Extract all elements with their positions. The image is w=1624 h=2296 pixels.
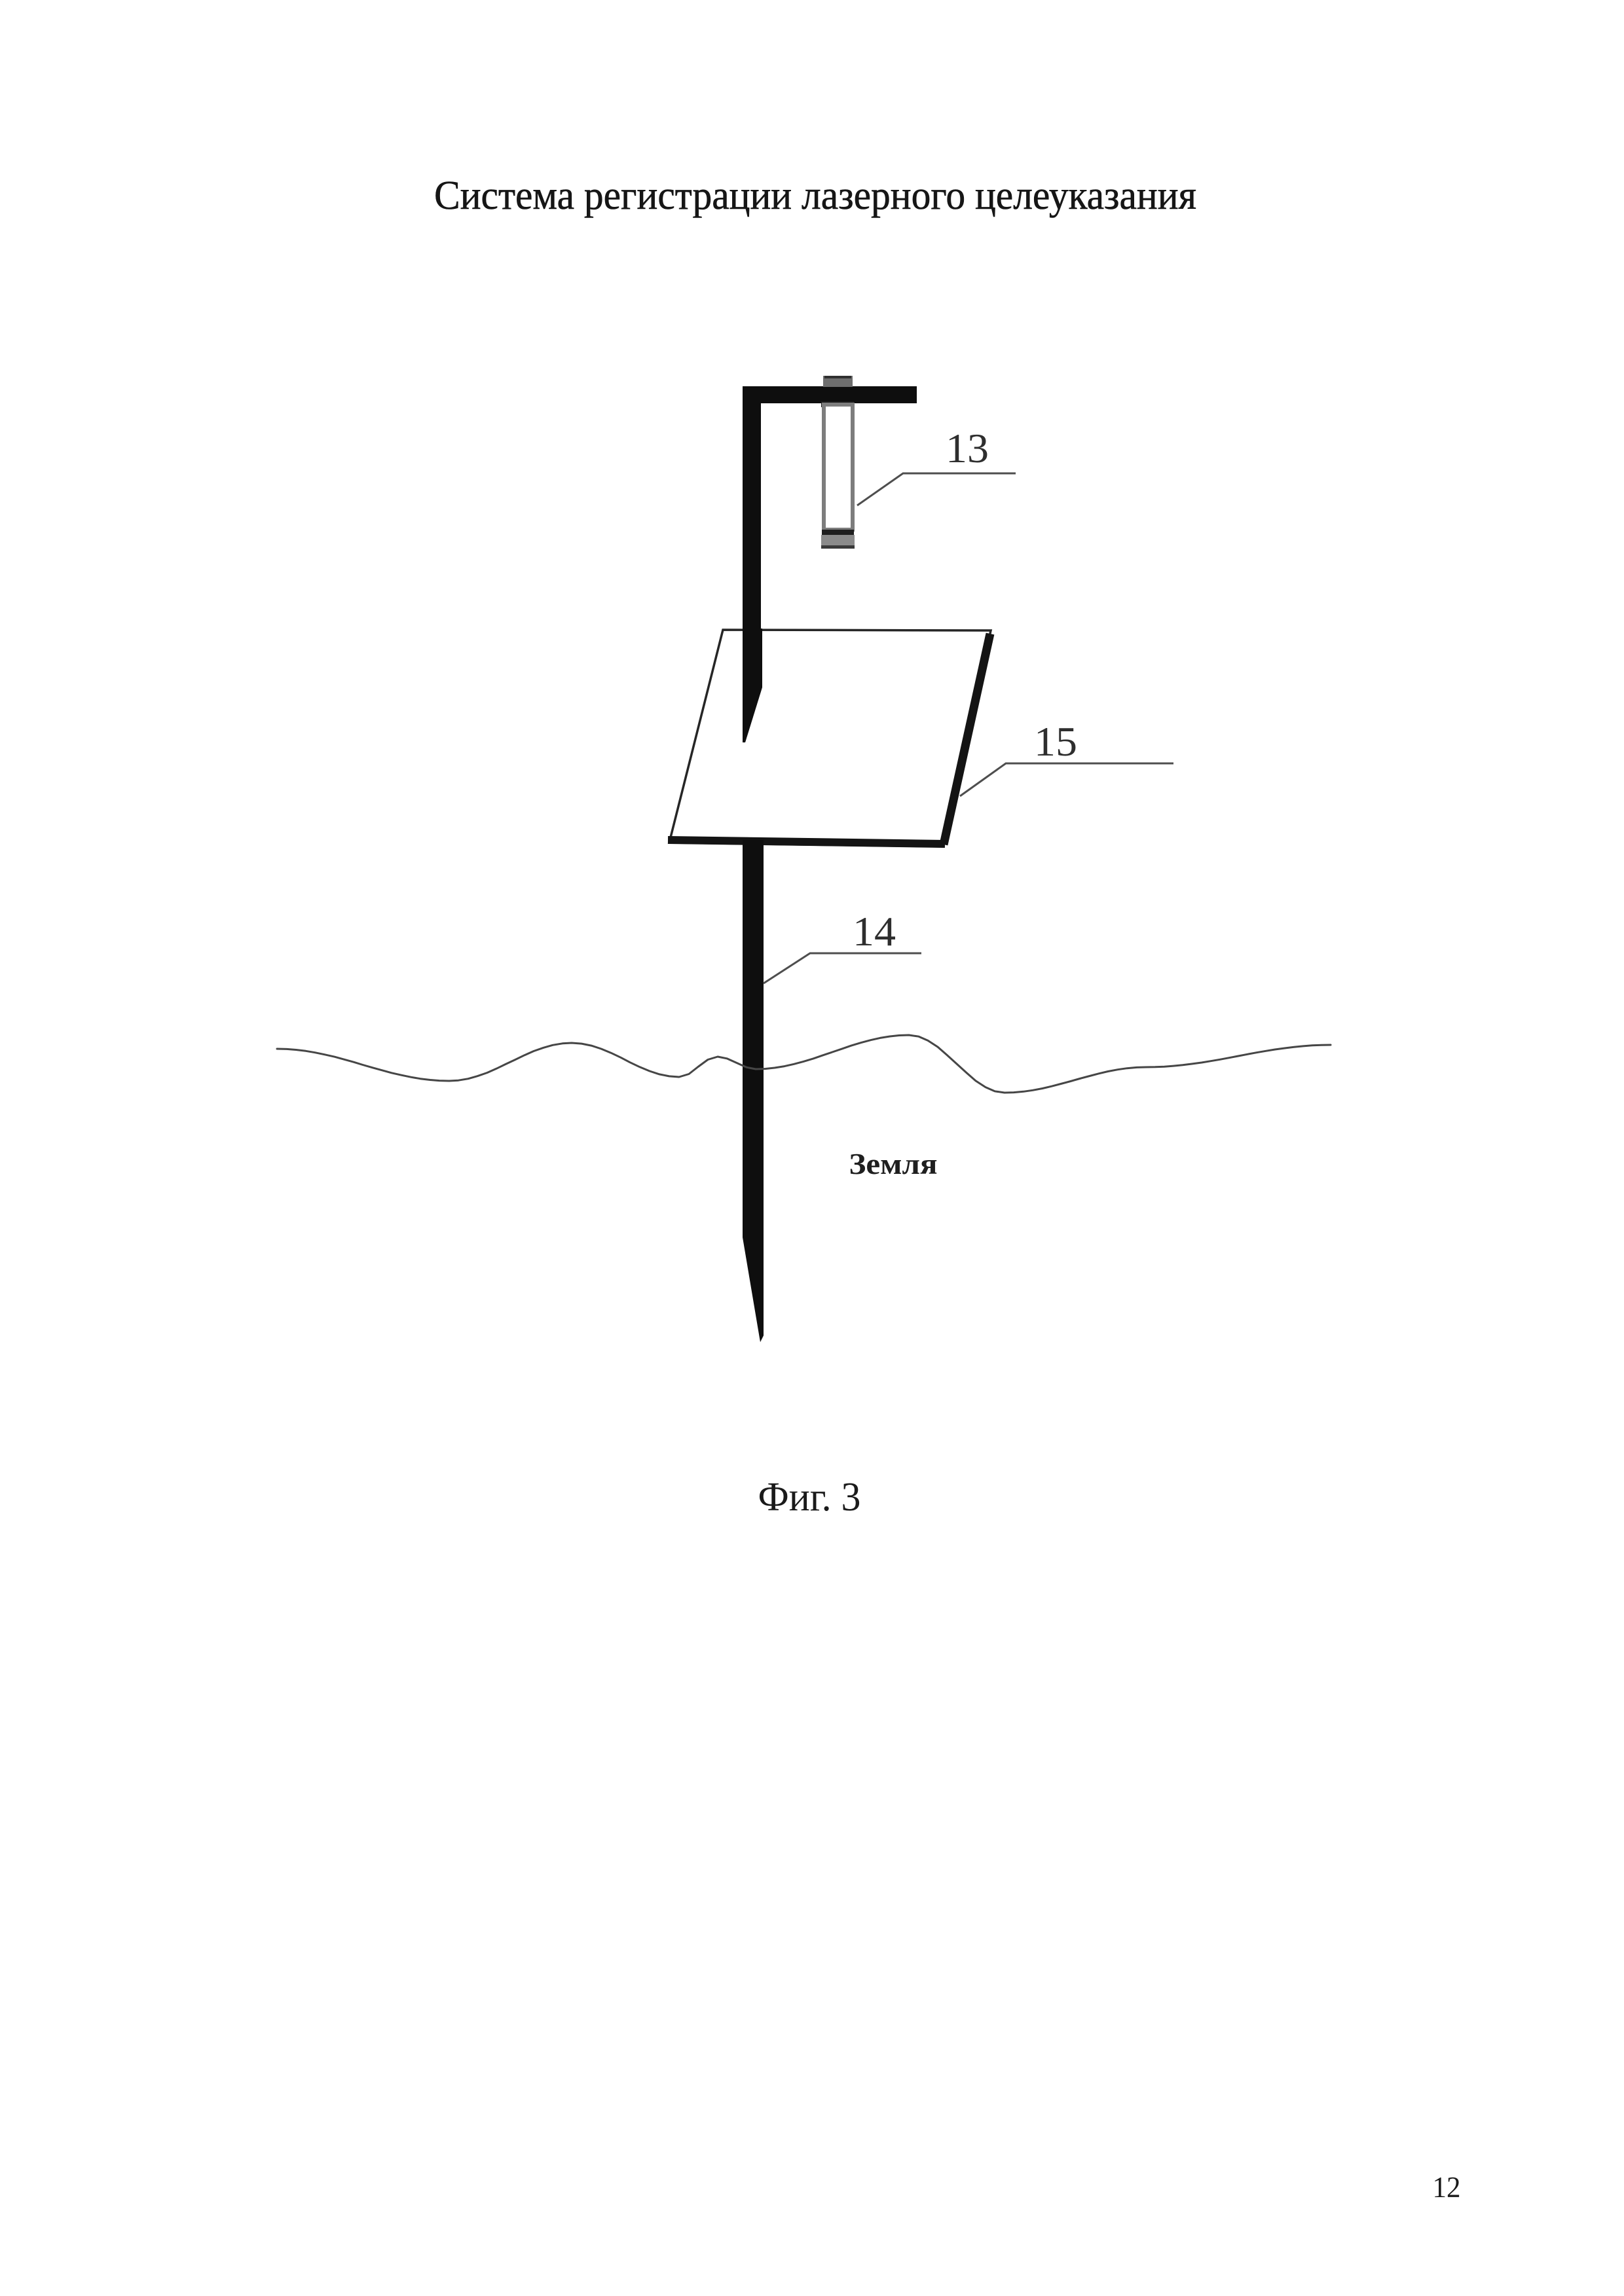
svg-text:Фиг. 3: Фиг. 3 bbox=[758, 1475, 861, 1520]
svg-text:Земля: Земля bbox=[849, 1147, 938, 1180]
svg-text:13: 13 bbox=[946, 426, 989, 471]
svg-text:12: 12 bbox=[1433, 2171, 1461, 2204]
svg-text:15: 15 bbox=[1034, 719, 1077, 765]
svg-text:Система регистрации лазерного: Система регистрации лазерного целеуказан… bbox=[434, 173, 1196, 218]
svg-text:14: 14 bbox=[853, 909, 896, 955]
